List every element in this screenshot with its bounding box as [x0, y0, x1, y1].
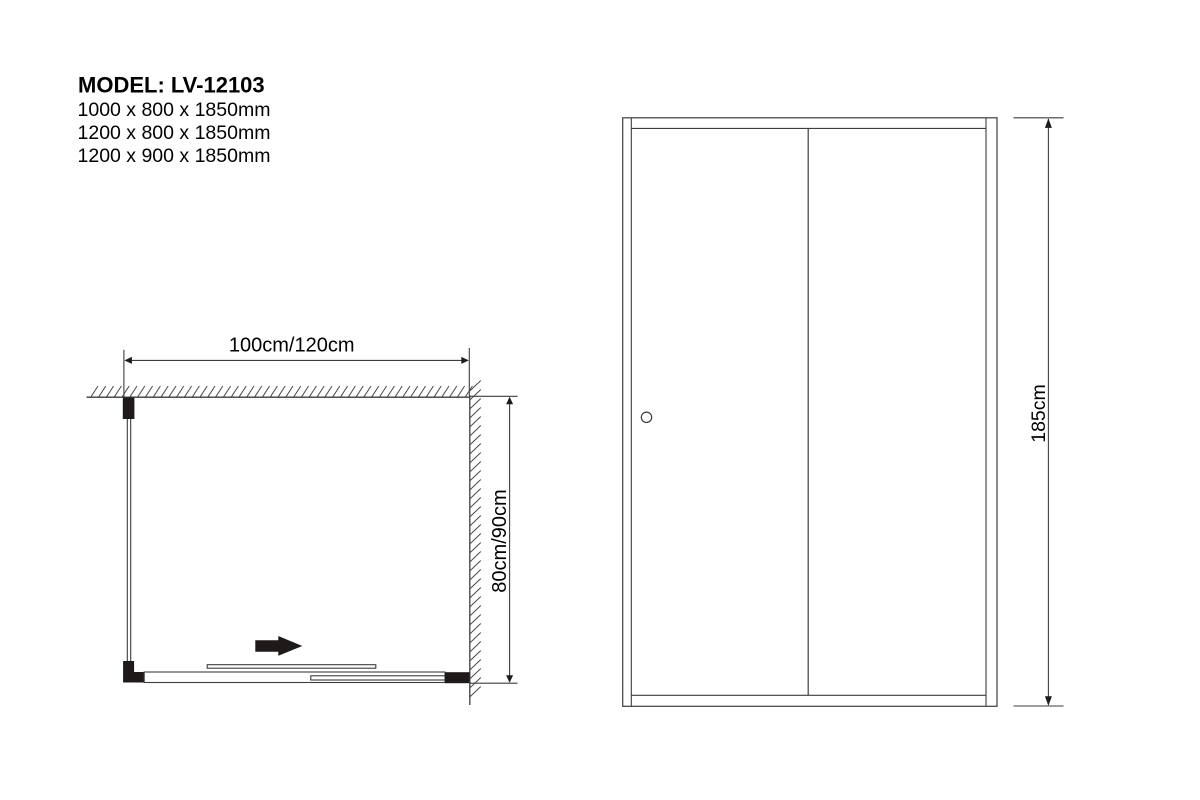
svg-text:100cm/120cm: 100cm/120cm: [229, 335, 355, 357]
svg-text:1200 x 800 x 1850mm: 1200 x 800 x 1850mm: [78, 122, 271, 144]
svg-text:MODEL: LV-12103: MODEL: LV-12103: [78, 73, 265, 98]
svg-text:1000 x 800 x 1850mm: 1000 x 800 x 1850mm: [78, 99, 271, 121]
svg-text:1200 x 900 x 1850mm: 1200 x 900 x 1850mm: [78, 145, 271, 167]
svg-text:185cm: 185cm: [1028, 384, 1050, 443]
svg-text:80cm/90cm: 80cm/90cm: [489, 489, 511, 592]
